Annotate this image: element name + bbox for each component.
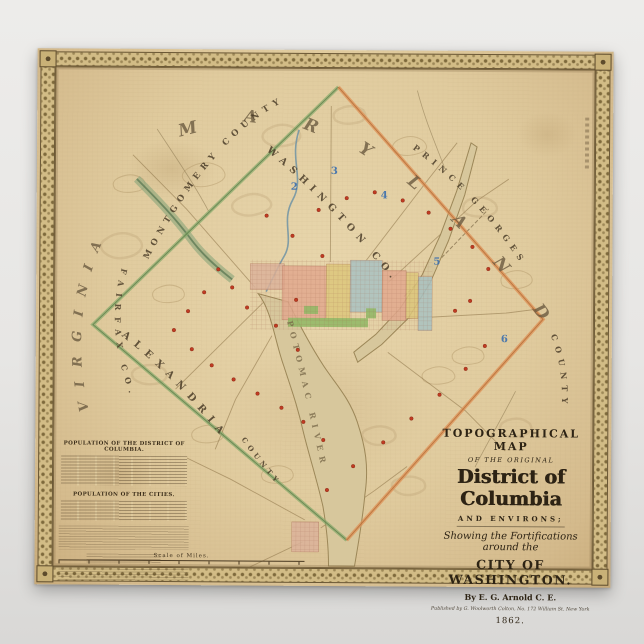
fort-marker xyxy=(464,367,468,371)
fort-marker xyxy=(274,324,278,328)
map-subtitle-fortifications: Showing the Fortifications around the xyxy=(431,531,591,554)
fort-marker xyxy=(410,417,414,421)
fort-marker xyxy=(256,392,260,396)
fort-marker xyxy=(294,298,298,302)
fort-marker xyxy=(230,286,234,290)
fort-marker xyxy=(373,190,377,194)
fort-marker xyxy=(438,393,442,397)
frame-corner-ornament xyxy=(40,50,57,67)
district-number: 2 xyxy=(291,182,298,193)
poster-photo: 23456 MARYLAND VIRGINIA MONTGOMERY COUNT… xyxy=(0,0,644,644)
fort-marker xyxy=(325,488,329,492)
fort-marker xyxy=(453,309,457,313)
frame-corner-ornament xyxy=(595,54,612,71)
notes-paragraph-2 xyxy=(58,568,188,581)
district-number: 4 xyxy=(381,190,388,201)
fort-marker xyxy=(317,208,321,212)
fort-marker xyxy=(172,328,176,332)
frame-corner-ornament xyxy=(36,565,53,582)
map-publisher: Published by G. Woolworth Colton, No. 17… xyxy=(430,607,590,613)
population-table-district-rows xyxy=(61,455,187,486)
fort-marker xyxy=(401,199,405,203)
fort-marker xyxy=(468,299,472,303)
district-number: 3 xyxy=(331,166,338,177)
fort-marker xyxy=(202,290,206,294)
fort-marker xyxy=(210,364,214,368)
alexandria-street-grid xyxy=(292,522,319,552)
map-subtitle-original: OF THE ORIGINAL xyxy=(431,456,591,465)
district-number: 6 xyxy=(501,334,508,345)
map-subtitle-environs: AND ENVIRONS; xyxy=(431,514,591,524)
fort-marker xyxy=(302,420,306,424)
map-year: 1862. xyxy=(430,616,590,627)
fort-marker xyxy=(190,347,194,351)
fort-marker xyxy=(216,268,220,272)
district-number: 5 xyxy=(433,257,440,268)
fort-marker xyxy=(280,406,284,410)
fort-marker xyxy=(381,441,385,445)
map-title: TOPOGRAPHICAL MAP xyxy=(431,427,591,454)
copyright-imprint-vertical xyxy=(585,118,589,170)
scale-bar: Scale of Miles. xyxy=(58,552,304,565)
alexandria-county-word: COUNTY xyxy=(239,435,283,486)
notes-paragraph xyxy=(59,525,189,550)
fort-marker xyxy=(486,267,490,271)
population-table-cities-title: POPULATION OF THE CITIES. xyxy=(57,491,191,498)
city-street-grid xyxy=(250,260,432,331)
fort-marker xyxy=(345,196,349,200)
title-rule xyxy=(457,526,565,528)
map-sheet: 23456 MARYLAND VIRGINIA MONTGOMERY COUNT… xyxy=(34,48,613,588)
map-author: By E. G. Arnold C. E. xyxy=(430,592,590,603)
map-title-district: District of Columbia xyxy=(431,466,591,511)
population-table-cities-rows xyxy=(61,500,187,521)
map-title-city: CITY OF WASHINGTON. xyxy=(430,557,590,588)
fort-marker xyxy=(232,378,236,382)
title-block: TOPOGRAPHICAL MAP OF THE ORIGINAL Distri… xyxy=(430,427,591,627)
fort-marker xyxy=(186,309,190,313)
population-table-district-title: POPULATION OF THE DISTRICT OF COLUMBIA. xyxy=(57,440,191,453)
fort-marker xyxy=(321,254,325,258)
fort-marker xyxy=(265,214,269,218)
fort-marker xyxy=(245,306,249,310)
alexandria-county-label: ALEXANDRIA xyxy=(118,329,230,442)
frame-corner-ornament xyxy=(591,569,608,586)
fort-marker xyxy=(427,211,431,215)
fort-marker xyxy=(483,344,487,348)
fort-marker xyxy=(351,464,355,468)
fort-marker xyxy=(291,234,295,238)
